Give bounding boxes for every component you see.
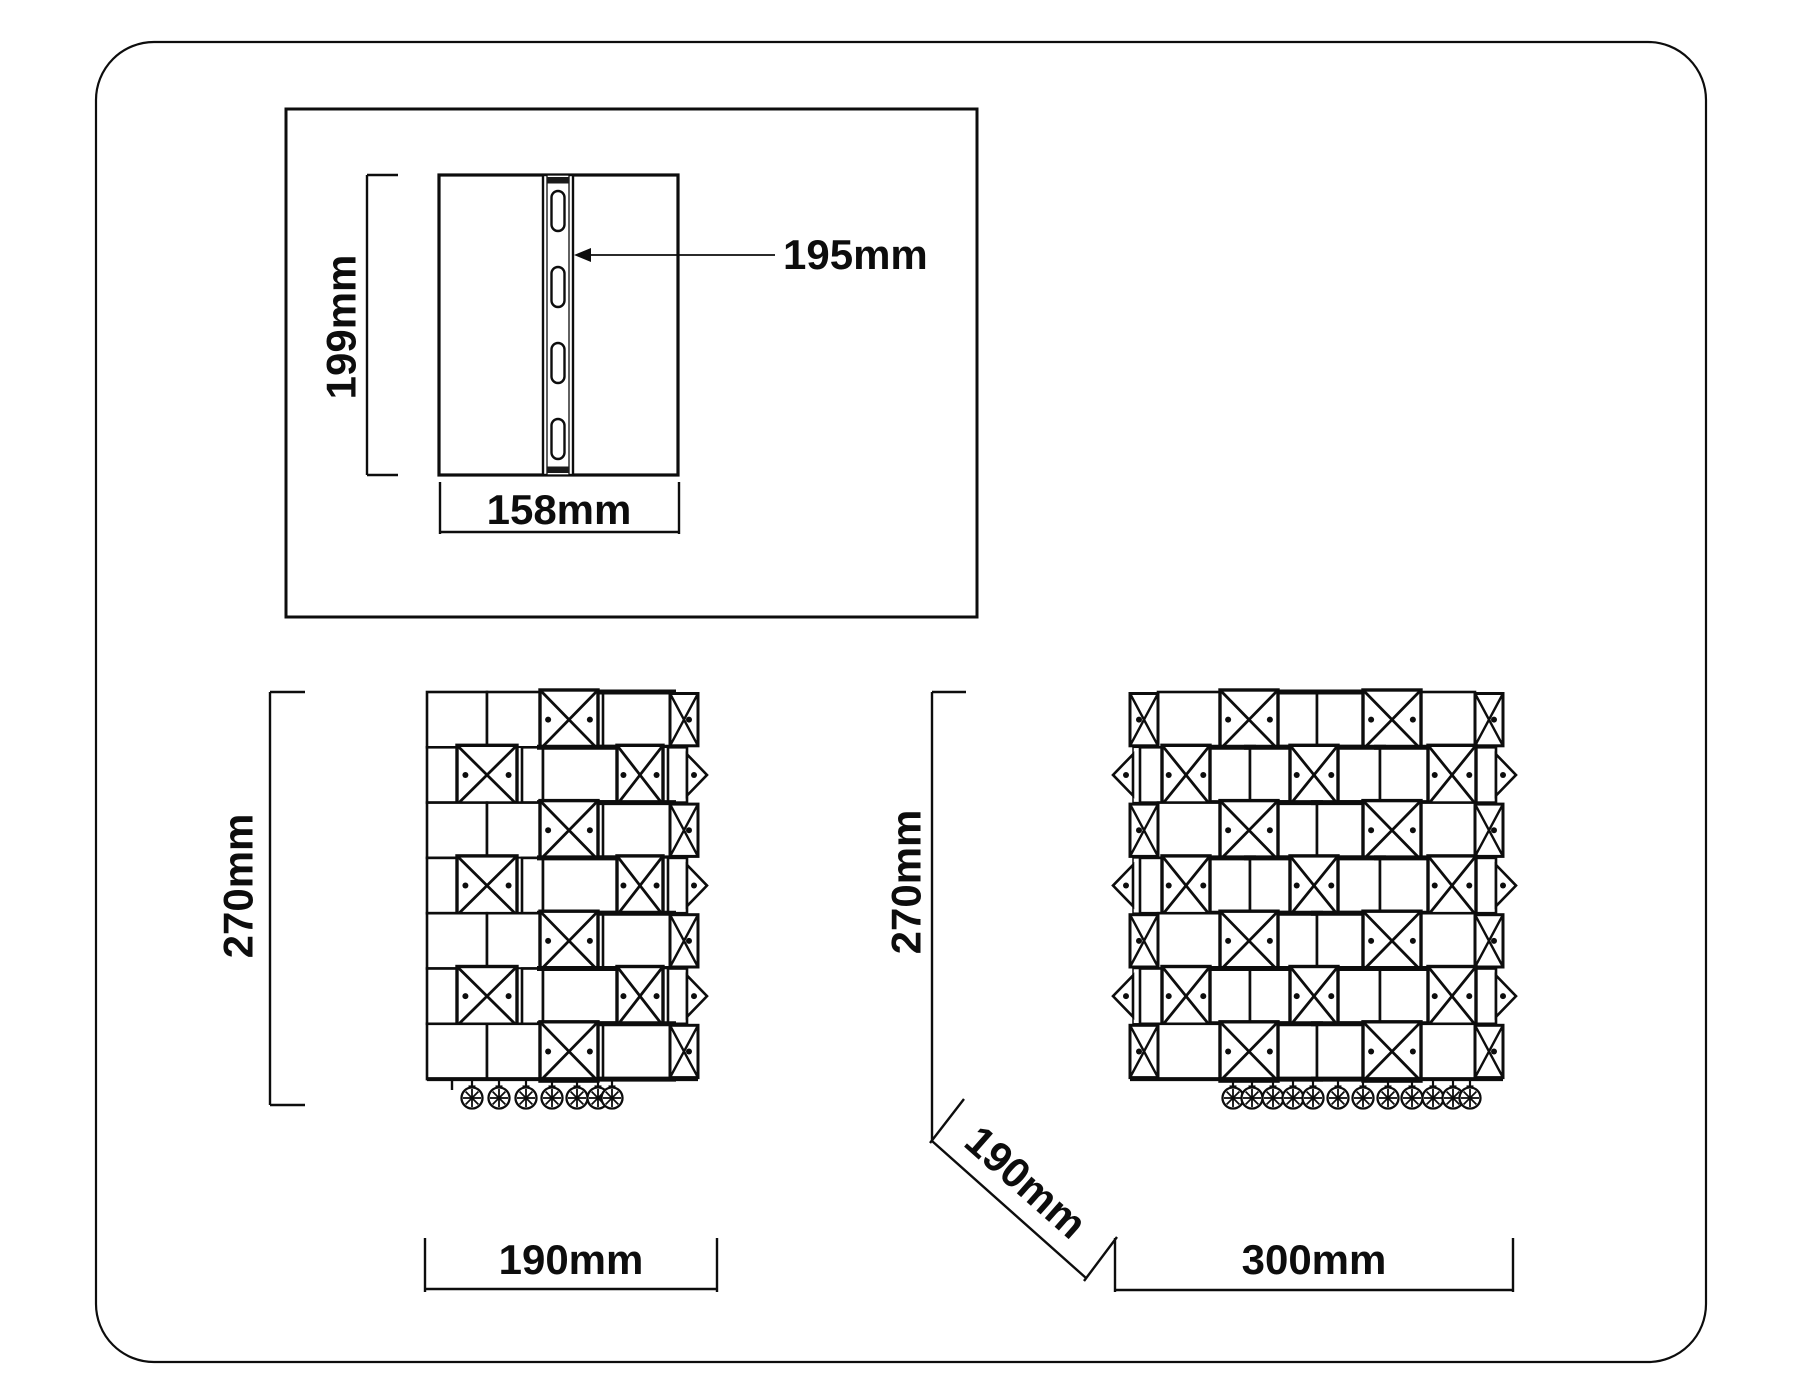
drawing-sheet: 199mm 158mm 195mm 270mm 190mm 270mm 190m… (0, 0, 1800, 1400)
front-height-label: 270mm (215, 814, 262, 959)
side-width-label: 300mm (1242, 1236, 1387, 1283)
dim-line-plate-height (367, 175, 398, 475)
dim-side-height: 270mm (883, 692, 967, 1143)
technical-dimension-diagram: 199mm 158mm 195mm 270mm 190mm 270mm 190m… (0, 0, 1800, 1400)
dim-side-depth: 190mm (932, 1116, 1117, 1292)
front-view-drawing (427, 690, 707, 1081)
side-view-crystals (1223, 1079, 1481, 1109)
plate-width-label: 158mm (487, 486, 632, 533)
front-width-label: 190mm (499, 1236, 644, 1283)
mounting-plate-drawing (439, 175, 678, 475)
side-view-drawing (1113, 690, 1516, 1081)
side-height-label: 270mm (883, 810, 930, 955)
plate-rail-label: 195mm (783, 231, 928, 278)
dim-front-height: 270mm (215, 692, 306, 1105)
dim-plate-width: 158mm (440, 482, 679, 534)
front-view-crystals (452, 1079, 623, 1109)
dim-plate-height: 199mm (318, 175, 399, 475)
dim-line-side-height (930, 692, 966, 1143)
dim-front-width: 190mm (425, 1236, 717, 1292)
plate-height-label: 199mm (318, 255, 365, 400)
dim-side-width: 300mm (1115, 1236, 1513, 1292)
dim-line-front-height (270, 692, 305, 1105)
